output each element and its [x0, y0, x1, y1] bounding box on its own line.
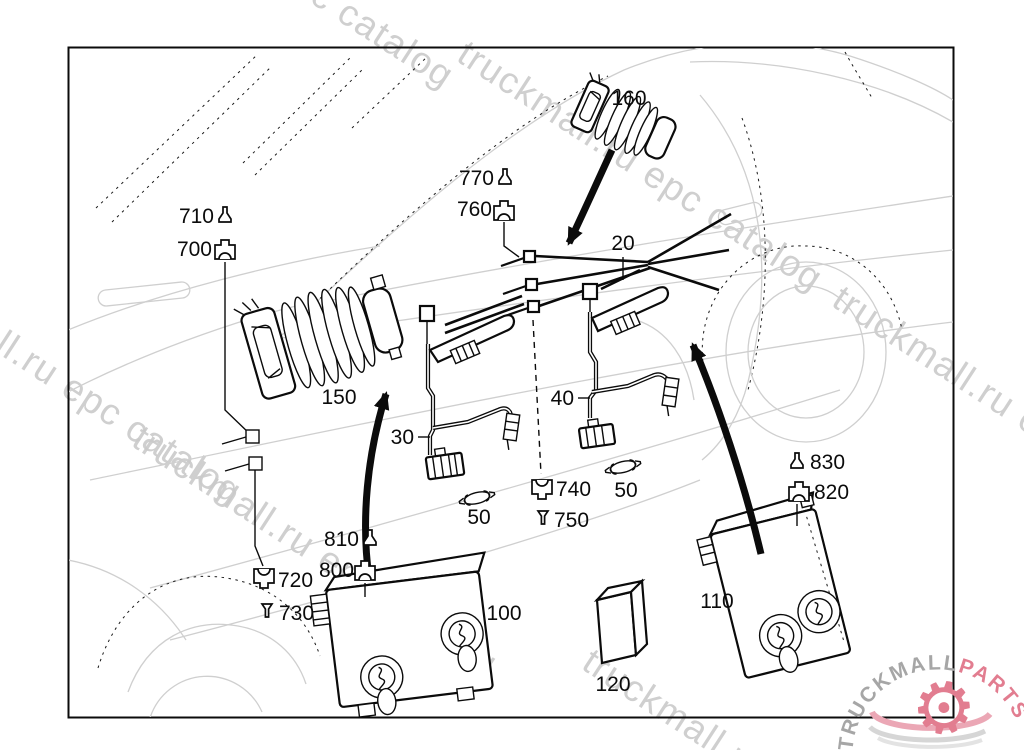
callout-110: 110 — [700, 590, 733, 613]
callout-720: 720 — [278, 569, 313, 592]
festoon-bulb-50 — [604, 457, 642, 476]
callout-730: 730 — [279, 602, 314, 625]
callout-20: 20 — [611, 232, 634, 255]
clip-nut-icon — [532, 480, 552, 499]
callout-710: 710 — [179, 205, 214, 228]
callout-160: 160 — [611, 87, 646, 110]
callout-700: 700 — [177, 238, 212, 261]
screw-icon — [538, 511, 548, 524]
callout-740: 740 — [556, 478, 591, 501]
parts-diagram-page: truckmall.ru epc catalog truckmall.ru ep… — [0, 0, 1024, 750]
pin-fastener-icon — [499, 169, 511, 184]
callout-120: 120 — [595, 673, 630, 696]
truckmall-parts-logo: ⚙ TRUCKMALLPARTS — [834, 651, 1024, 750]
callout-750: 750 — [554, 509, 589, 532]
relay-box-120 — [597, 581, 647, 663]
callout-820: 820 — [814, 481, 849, 504]
callout-760: 760 — [457, 198, 492, 221]
clip-nut-icon — [789, 482, 809, 501]
callout-150: 150 — [321, 386, 356, 409]
harness-30 — [420, 306, 520, 479]
callout-830: 830 — [810, 451, 845, 474]
callout-50: 50 — [614, 479, 637, 502]
watermark-text: truckmall.ru epc catalog — [451, 32, 831, 299]
callout-40: 40 — [551, 387, 574, 410]
clip-nut-icon — [494, 201, 514, 220]
grommet-bellows-150 — [232, 262, 409, 404]
pin-fastener-icon — [219, 207, 231, 222]
clip-nut-icon — [254, 569, 274, 588]
callout-50: 50 — [467, 506, 490, 529]
pin-fastener-icon — [791, 453, 803, 468]
callout-800: 800 — [319, 559, 354, 582]
callout-810: 810 — [324, 528, 359, 551]
callout-30: 30 — [391, 426, 414, 449]
watermark-layer: truckmall.ru epc catalog truckmall.ru ep… — [0, 0, 1024, 750]
festoon-bulb-50 — [458, 488, 496, 507]
parts-diagram-canvas: truckmall.ru epc catalog truckmall.ru ep… — [0, 0, 1024, 750]
callout-100: 100 — [486, 602, 521, 625]
clip-nut-icon — [215, 240, 235, 259]
callout-770: 770 — [459, 167, 494, 190]
